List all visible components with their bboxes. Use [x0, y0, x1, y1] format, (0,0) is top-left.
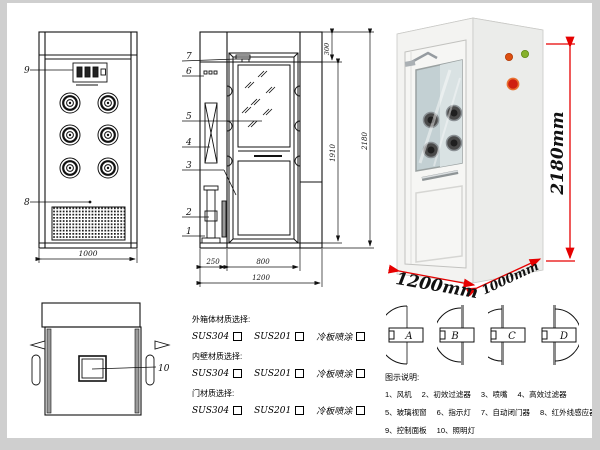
callout-6: 6	[186, 67, 192, 77]
material-checkbox[interactable]	[295, 332, 304, 341]
dim-250: 250	[205, 258, 220, 266]
material-option-label: SUS304	[192, 332, 229, 342]
legend-item: 5、玻璃视窗	[385, 407, 427, 418]
door-direction-icon-A[interactable]: A	[386, 303, 426, 367]
material-option-label: SUS201	[254, 406, 291, 416]
callout-7: 7	[186, 52, 192, 62]
material-section-title: 内壁材质选择:	[192, 351, 342, 362]
material-option-label: SUS201	[254, 369, 291, 379]
dim-2180: 2180	[361, 132, 369, 151]
material-checkbox[interactable]	[295, 369, 304, 378]
legend-title: 图示说明:	[385, 372, 598, 383]
material-option-label: 冷板喷涂	[316, 330, 352, 343]
dim-1910: 1910	[329, 144, 337, 162]
air-return-grille	[52, 207, 125, 240]
callout-10: 10	[158, 364, 170, 374]
nozzles	[60, 93, 118, 178]
frame-right	[592, 0, 600, 450]
material-option-label: 冷板喷涂	[316, 367, 352, 380]
material-checkbox[interactable]	[356, 332, 365, 341]
material-checkbox[interactable]	[233, 406, 242, 415]
fan-column	[207, 190, 215, 238]
legend-item: 2、初效过滤器	[422, 389, 471, 400]
legend: 图示说明: 1、风机 2、初效过滤器 3、喷嘴 4、高效过滤器 5、玻璃视窗 6…	[385, 372, 598, 443]
svg-text:D: D	[559, 331, 568, 342]
glass-window	[416, 60, 462, 171]
legend-item: 6、指示灯	[437, 407, 471, 418]
material-section-door: 门材质选择: SUS304 SUS201 冷板喷涂	[192, 388, 342, 417]
door	[229, 53, 298, 243]
material-option-label: 冷板喷涂	[316, 404, 352, 417]
legend-item: 4、高效过滤器	[518, 389, 567, 400]
dim-800: 800	[256, 258, 270, 266]
glass-window	[238, 65, 290, 147]
material-checkbox[interactable]	[233, 369, 242, 378]
callout-1: 1	[186, 227, 192, 237]
door-direction-icon-B[interactable]: B	[437, 303, 477, 367]
top-view-drawing: 10	[28, 293, 188, 433]
legend-item: 8、红外线感应器	[540, 407, 597, 418]
material-section-outer-box: 外箱体材质选择: SUS304 SUS201 冷板喷涂	[192, 314, 342, 343]
material-section-title: 门材质选择:	[192, 388, 342, 399]
material-section-title: 外箱体材质选择:	[192, 314, 342, 325]
door-direction-options: A B C D	[386, 303, 579, 367]
material-option-label: SUS201	[254, 332, 291, 342]
material-checkbox[interactable]	[356, 369, 365, 378]
emergency-button	[507, 78, 518, 89]
svg-text:A: A	[404, 331, 412, 342]
side-view-drawing: 7 6 5 4 3 2 1 300 1910 2180 250	[178, 25, 378, 290]
callout-5: 5	[186, 112, 192, 122]
dim-300: 300	[323, 43, 331, 55]
indicator-light-red	[505, 53, 512, 60]
material-checkbox[interactable]	[295, 406, 304, 415]
door-direction-icon-C[interactable]: C	[488, 303, 528, 367]
air-shower-spec-sheet: 9 8 1000	[0, 0, 600, 450]
indicator-light-green	[521, 50, 528, 57]
svg-text:C: C	[508, 331, 516, 342]
callout-9: 9	[24, 66, 30, 76]
frame-top	[0, 0, 600, 3]
front-view-drawing: 9 8 1000	[18, 25, 150, 270]
control-panel	[73, 63, 107, 85]
callout-2: 2	[185, 208, 192, 218]
material-selection: 外箱体材质选择: SUS304 SUS201 冷板喷涂 内壁材质选择: SUS3…	[192, 314, 342, 425]
legend-item: 1、风机	[385, 389, 412, 400]
callout-4: 4	[185, 138, 192, 148]
callout-3: 3	[186, 161, 192, 171]
legend-item: 10、照明灯	[437, 425, 475, 436]
material-option-label: SUS304	[192, 369, 229, 379]
material-checkbox[interactable]	[233, 332, 242, 341]
frame-bottom	[0, 438, 600, 450]
callout-8: 8	[24, 198, 30, 208]
photo-height-dim: 2180mm	[548, 111, 568, 195]
svg-text:B: B	[450, 331, 458, 342]
front-width-dim: 1000	[78, 249, 97, 258]
legend-item: 9、控制面板	[385, 425, 427, 436]
legend-item: 3、喷嘴	[481, 389, 508, 400]
door-direction-icon-D[interactable]: D	[539, 303, 579, 367]
legend-item: 7、自动闭门器	[481, 407, 530, 418]
door-closer	[236, 55, 250, 62]
material-section-inner-wall: 内壁材质选择: SUS304 SUS201 冷板喷涂	[192, 351, 342, 380]
material-option-label: SUS304	[192, 406, 229, 416]
material-checkbox[interactable]	[356, 406, 365, 415]
product-photo: 2180mm 1200mm 1000mm	[378, 8, 600, 300]
frame-left	[0, 0, 7, 450]
dim-1200: 1200	[252, 274, 270, 282]
